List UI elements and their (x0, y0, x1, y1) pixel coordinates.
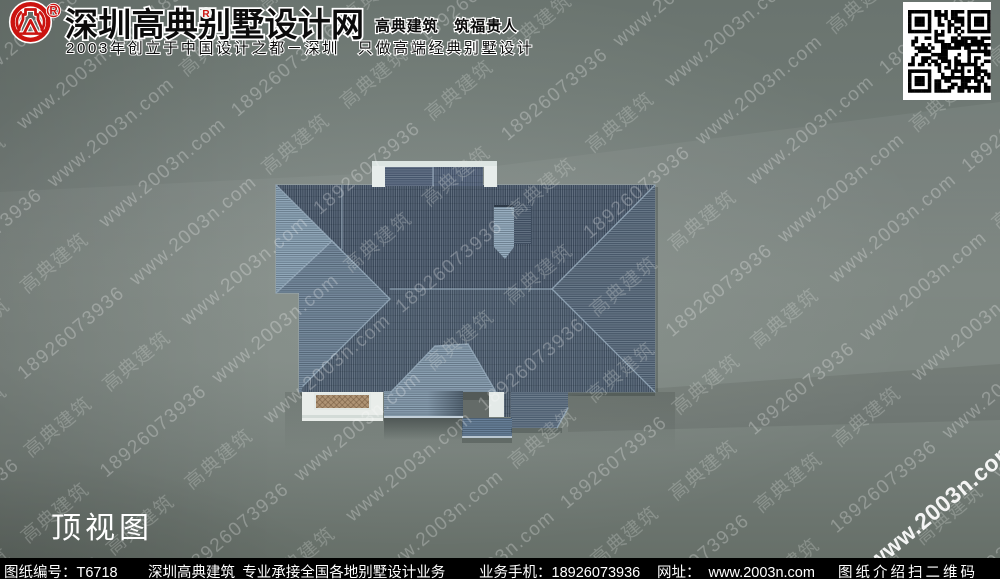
svg-text:R: R (49, 6, 58, 18)
svg-text:高典建筑 筑福贵人: 高典建筑 筑福贵人 (375, 17, 518, 35)
svg-text:R: R (202, 9, 210, 20)
svg-text:深圳高典别墅设计网: 深圳高典别墅设计网 (65, 6, 364, 43)
svg-text:2003年创立于中国设计之都－深圳 只做高端经典别墅设计: 2003年创立于中国设计之都－深圳 只做高端经典别墅设计 (66, 40, 532, 57)
